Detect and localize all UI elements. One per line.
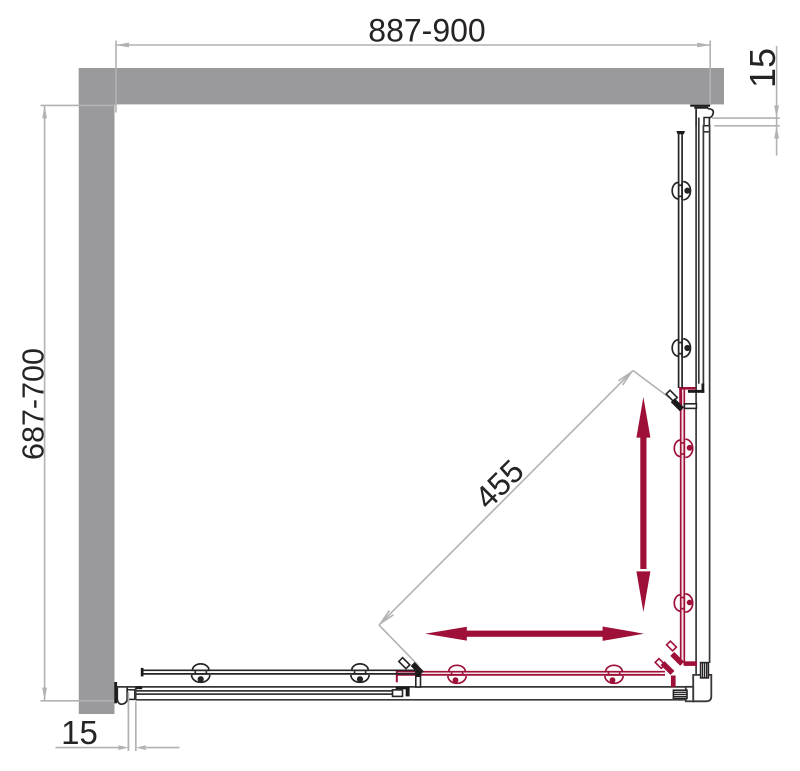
svg-text:15: 15 xyxy=(61,714,98,751)
svg-text:15: 15 xyxy=(742,48,783,88)
svg-text:687-700: 687-700 xyxy=(17,348,51,460)
svg-text:887-900: 887-900 xyxy=(368,13,485,49)
